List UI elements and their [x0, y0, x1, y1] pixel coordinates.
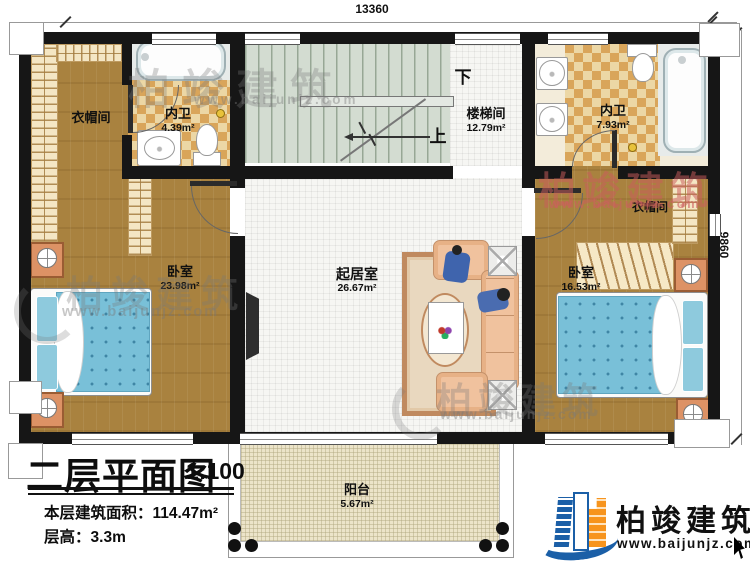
bathtub-icon — [663, 48, 706, 153]
plant-pot-icon — [37, 248, 57, 268]
wall-right — [708, 32, 720, 444]
room-name: 阳台 — [340, 483, 373, 498]
up-text: 上 — [430, 127, 447, 146]
window — [72, 433, 193, 445]
logo-building-orange-icon — [589, 498, 606, 547]
balcony-post — [479, 539, 492, 552]
logo-building-white-icon — [573, 492, 589, 551]
sink-icon — [539, 106, 565, 132]
stair-direction-arrow — [344, 133, 353, 141]
window — [545, 433, 668, 445]
stair-landing-floor — [450, 44, 522, 166]
pillow-icon — [682, 300, 704, 345]
room-label-cloakroom-tl: 衣帽间 — [71, 111, 110, 126]
nightstand — [674, 258, 708, 292]
watermark-url-red: www.baijunjz.com — [549, 196, 701, 211]
axis-break-box — [9, 22, 44, 55]
title-rule — [28, 487, 234, 490]
floor-height-label: 层高： — [44, 529, 91, 546]
plan-scale: 1:100 — [186, 458, 245, 485]
axis-break-box — [9, 381, 42, 414]
right-dimension-line — [741, 30, 742, 445]
watermark-url: www.baijunjz.com — [62, 304, 219, 320]
window — [152, 33, 216, 45]
floor-area-line: 本层建筑面积：114.47m² — [44, 501, 218, 523]
floor-area-value: 114.47m² — [153, 505, 219, 522]
balcony-post — [496, 539, 509, 552]
tv-icon — [246, 292, 259, 360]
room-area: 7.93m² — [596, 119, 629, 131]
room-label-bedroom-right: 卧室16.53m² — [561, 266, 600, 293]
window — [455, 33, 520, 45]
toilet-icon — [632, 53, 654, 82]
logo-url-text: www.baijunjz.com — [617, 536, 750, 551]
person-figure — [442, 250, 471, 283]
room-label-bath-right: 内卫7.93m² — [596, 104, 629, 131]
wardrobe-strip-left — [31, 44, 58, 242]
stair-up-label: 上 — [430, 127, 447, 147]
title-rule — [28, 493, 234, 495]
wardrobe-strip-bedroom-left — [128, 178, 152, 256]
stair-down-label: 下 — [455, 68, 472, 88]
room-label-balcony: 阳台5.67m² — [340, 483, 373, 510]
watermark-url: www.baijunjz.com — [440, 406, 593, 422]
flower-vase-icon — [437, 325, 453, 339]
wall-bath-right-left-upper — [522, 32, 535, 188]
room-name: 起居室 — [336, 266, 378, 282]
tub-faucet-icon — [678, 56, 686, 64]
corner-table — [488, 246, 517, 276]
logo-brand-text: 柏竣建筑 — [616, 496, 750, 540]
floor-plan-page: 13360 9860 — [0, 0, 750, 568]
wall-top — [19, 32, 720, 44]
room-label-stairwell: 楼梯间12.79m² — [466, 107, 505, 134]
balcony-post — [245, 539, 258, 552]
toilet-icon — [196, 124, 218, 156]
room-area: 16.53m² — [561, 281, 600, 293]
wardrobe-strip-top — [56, 44, 124, 62]
watermark-brand: 柏竣建筑 — [128, 56, 344, 117]
room-area: 5.67m² — [340, 498, 373, 510]
balcony-post — [496, 522, 509, 535]
sink-icon — [539, 60, 565, 86]
watermark-url: www.baijunjz.com — [194, 92, 359, 107]
floor-height-value: 3.3m — [91, 529, 126, 546]
floor-height-line: 层高：3.3m — [44, 525, 126, 547]
wall-horizontal-mid — [128, 166, 453, 179]
person-head — [497, 288, 510, 301]
sink-icon — [144, 136, 175, 160]
room-label-living: 起居室26.67m² — [336, 266, 378, 294]
axis-break-box — [674, 419, 730, 448]
room-area: 4.39m² — [161, 122, 194, 134]
stair-direction-line — [352, 136, 430, 138]
room-name: 卧室 — [561, 266, 600, 281]
balcony-post — [228, 522, 241, 535]
person-head — [452, 245, 462, 255]
bed-sheet-fold — [652, 295, 682, 395]
room-area: 12.79m² — [466, 122, 505, 134]
window — [245, 33, 300, 45]
room-name: 内卫 — [596, 104, 629, 119]
coffee-table — [428, 302, 464, 354]
axis-break-box — [699, 23, 740, 57]
balcony-post — [228, 539, 241, 552]
room-area: 26.67m² — [336, 282, 378, 294]
top-dimension: 13360 — [340, 2, 404, 16]
plant-pot-icon — [681, 264, 701, 284]
nightstand — [30, 242, 64, 278]
pillow-icon — [682, 347, 704, 392]
down-text: 下 — [455, 68, 472, 87]
window — [548, 33, 608, 45]
door-handle-dot — [628, 143, 637, 152]
window — [709, 214, 721, 236]
room-name: 衣帽间 — [71, 111, 110, 126]
top-dimension-line — [30, 22, 737, 23]
floor-area-label: 本层建筑面积： — [44, 505, 153, 522]
room-name: 楼梯间 — [466, 107, 505, 122]
